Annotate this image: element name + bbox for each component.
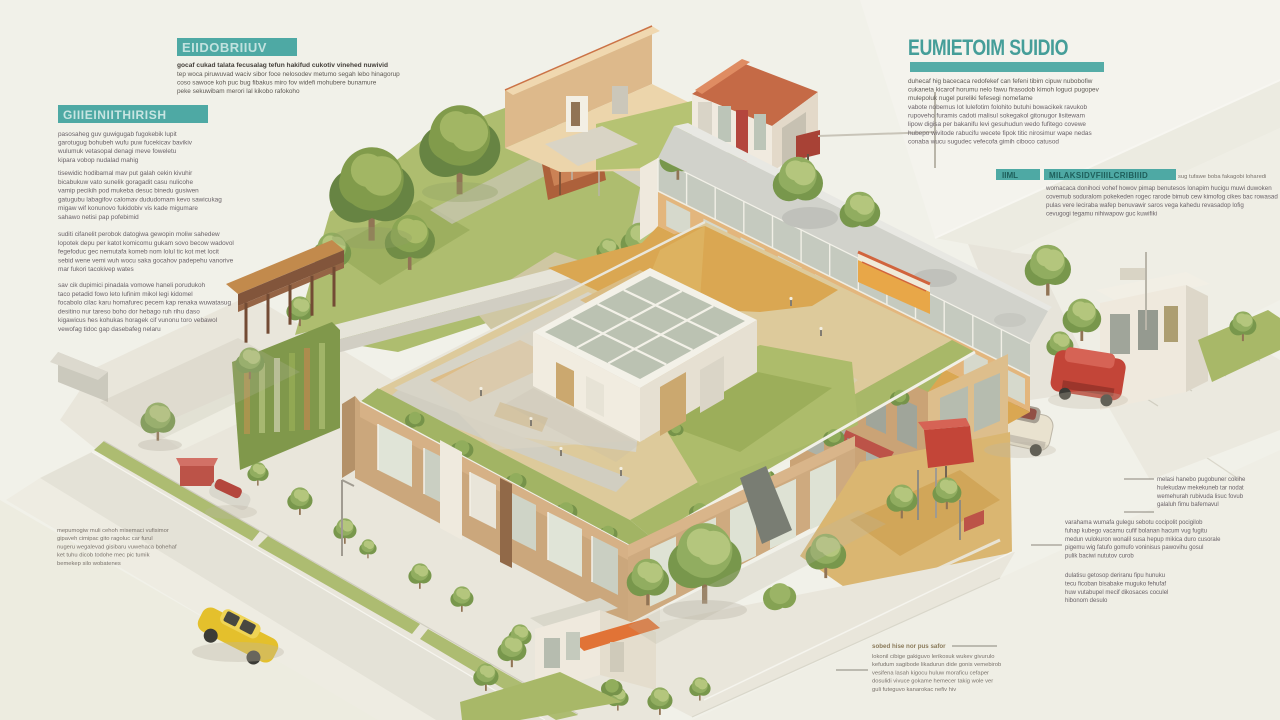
svg-text:gocaf cukad talata fecusalag t: gocaf cukad talata fecusalag tefun hakif… (177, 62, 388, 69)
svg-text:sobed hise nor pus safor: sobed hise nor pus safor (872, 643, 946, 650)
svg-text:EUMIETOIM SUIDIO: EUMIETOIM SUIDIO (908, 35, 1068, 60)
svg-text:sug tufawe boba fakagobi lohar: sug tufawe boba fakagobi loharedi (1178, 174, 1266, 180)
svg-text:EIIDOBRIIUV: EIIDOBRIIUV (182, 40, 267, 55)
svg-text:IIML: IIML (1002, 171, 1018, 180)
svg-text:MILAKSIDVFIIILCRIBIIID: MILAKSIDVFIIILCRIBIIID (1049, 171, 1148, 180)
svg-text:GIIIEINIITHIRISH: GIIIEINIITHIRISH (63, 108, 167, 122)
